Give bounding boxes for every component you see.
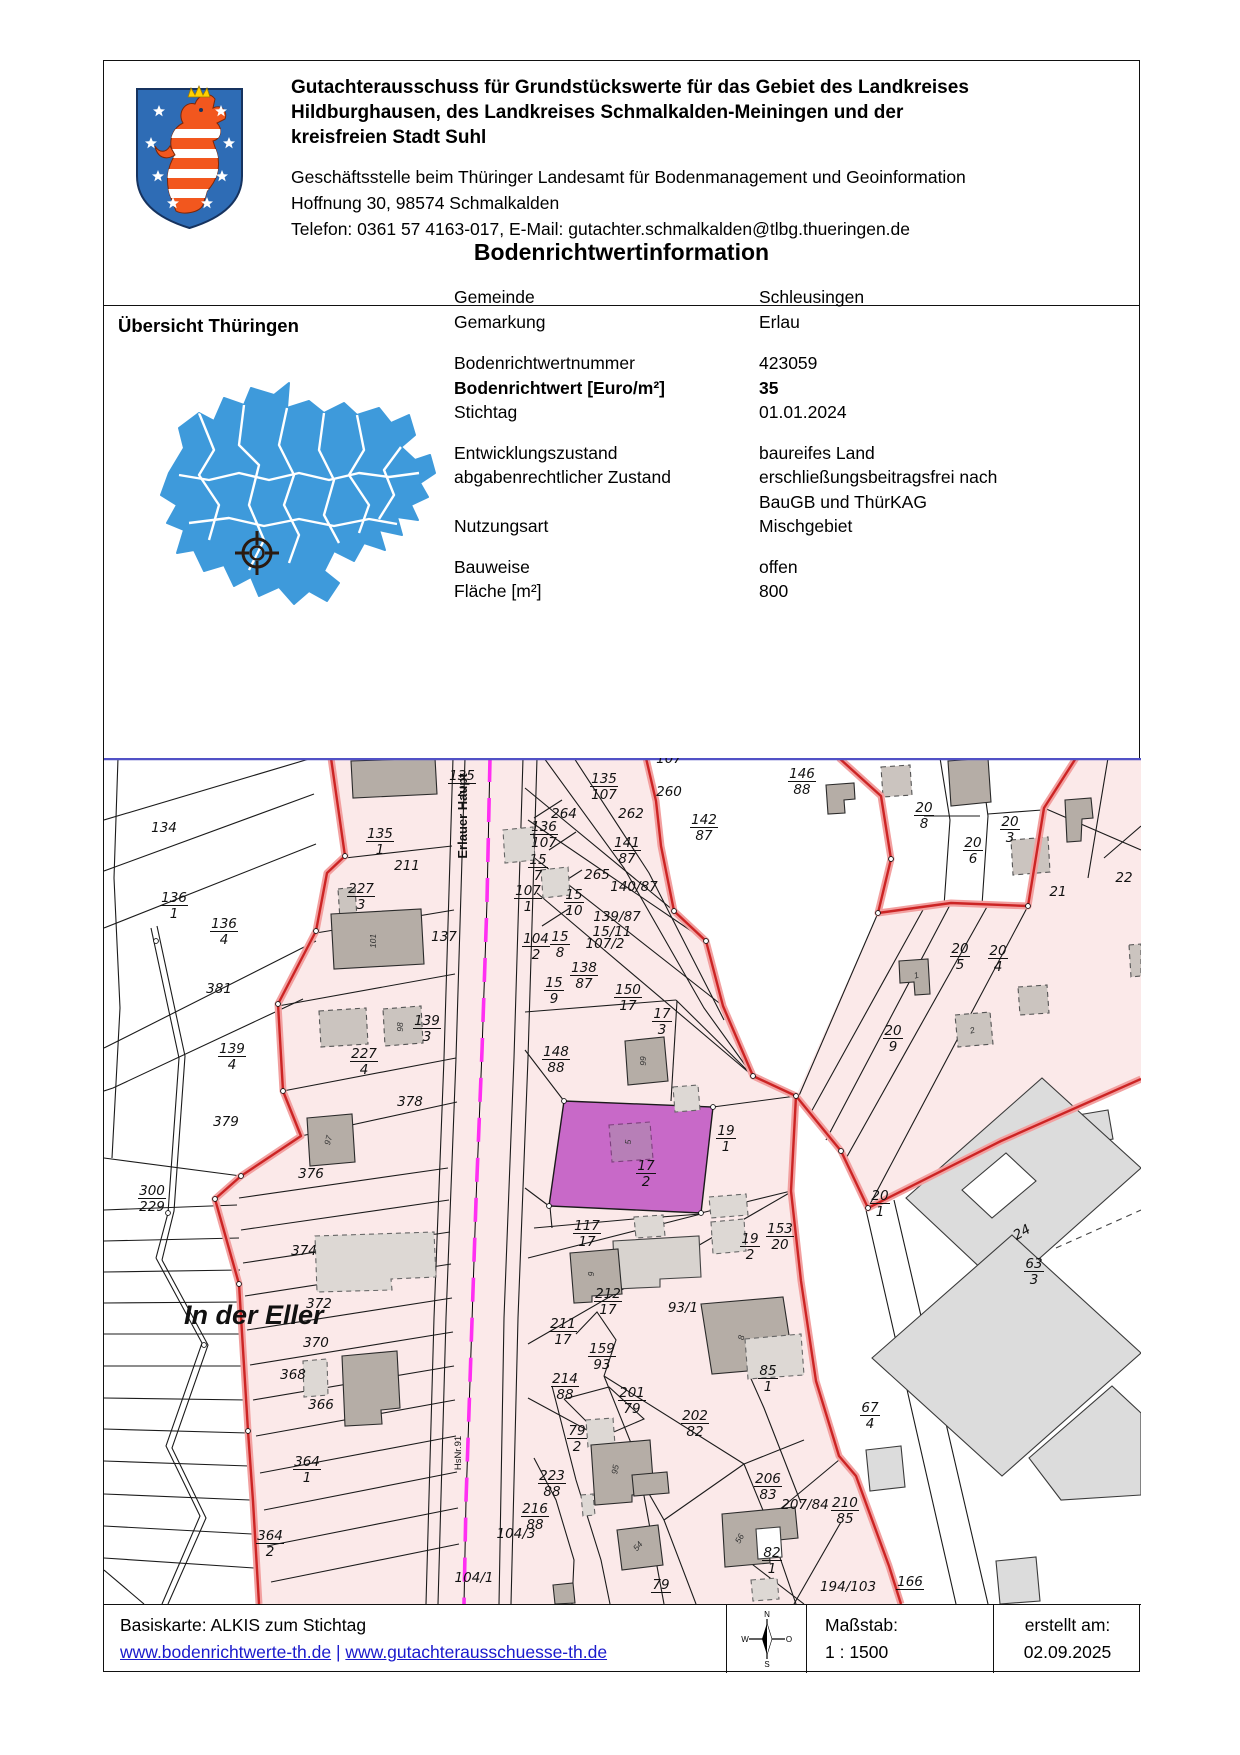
parcel-label: 107 — [656, 758, 682, 767]
parcel-label: 194/103 — [820, 1579, 876, 1595]
building — [351, 758, 437, 798]
svg-text:153: 153 — [767, 1221, 793, 1237]
parcel-label: 265 — [584, 867, 610, 883]
svg-text:79: 79 — [568, 1423, 585, 1439]
svg-text:17: 17 — [619, 998, 637, 1014]
building — [751, 1578, 779, 1601]
svg-text:17: 17 — [637, 1158, 655, 1174]
svg-text:370: 370 — [303, 1335, 329, 1351]
svg-text:1: 1 — [376, 842, 385, 858]
svg-text:136: 136 — [211, 916, 237, 932]
building — [586, 1418, 615, 1447]
svg-text:79: 79 — [623, 1401, 640, 1417]
svg-text:2: 2 — [746, 1247, 755, 1263]
scale-value: 1 : 1500 — [825, 1639, 993, 1666]
svg-text:93: 93 — [593, 1357, 610, 1373]
parcel-label: 211 — [394, 858, 420, 874]
svg-text:88: 88 — [547, 1060, 564, 1076]
created-label: erstellt am: — [994, 1612, 1141, 1639]
svg-text:2: 2 — [532, 947, 541, 963]
link-bodenrich twerte[interactable]: www.bodenrichtwerte-th.de — [120, 1642, 331, 1662]
svg-text:136: 136 — [531, 819, 557, 835]
street-name-hsnr91: HsNr.91 — [453, 1436, 464, 1470]
svg-text:211: 211 — [550, 1316, 576, 1332]
svg-text:300: 300 — [139, 1183, 165, 1199]
svg-text:117: 117 — [574, 1218, 600, 1234]
svg-text:1: 1 — [722, 1139, 731, 1155]
parcel-label: 1394 — [218, 1041, 246, 1073]
svg-text:368: 368 — [280, 1367, 306, 1383]
svg-text:8: 8 — [920, 816, 929, 832]
svg-text:83: 83 — [759, 1487, 776, 1503]
parcel-label: 262 — [618, 806, 644, 822]
svg-text:138: 138 — [571, 960, 597, 976]
svg-text:159: 159 — [589, 1341, 615, 1357]
info-row: NutzungsartMischgebiet — [454, 514, 1114, 539]
svg-text:207/84: 207/84 — [781, 1497, 829, 1513]
building — [996, 1557, 1040, 1604]
parcel-label: 140/87 — [610, 879, 658, 895]
svg-text:6: 6 — [969, 851, 978, 867]
svg-text:4: 4 — [866, 1416, 875, 1432]
svg-text:3: 3 — [357, 897, 366, 913]
building — [634, 1215, 665, 1238]
svg-text:20: 20 — [884, 1023, 901, 1039]
svg-text:93/1: 93/1 — [668, 1300, 698, 1316]
svg-text:22: 22 — [1115, 870, 1132, 886]
parcel-label: 22 — [1115, 870, 1132, 886]
svg-text:W: W — [741, 1635, 749, 1644]
svg-text:378: 378 — [397, 1094, 423, 1110]
parcel-label: 201 — [870, 1188, 890, 1220]
svg-text:63: 63 — [1025, 1256, 1042, 1272]
svg-text:229: 229 — [139, 1199, 165, 1215]
info-row: Bodenrichtwertnummer423059 — [454, 351, 1114, 376]
svg-text:4: 4 — [360, 1062, 369, 1078]
parcel-label: 381 — [206, 981, 232, 997]
svg-text:15: 15 — [529, 852, 546, 868]
building-number: 5 — [623, 1139, 633, 1144]
svg-text:137: 137 — [431, 929, 457, 945]
parcel-label: 134 — [151, 820, 177, 836]
building-number: 9 — [586, 1271, 596, 1276]
parcel-label: 104/1 — [455, 1570, 494, 1586]
parcel-label: 1364 — [210, 916, 238, 948]
parcel-label: 139/87 — [593, 909, 641, 925]
building-number: 95 — [609, 1464, 621, 1475]
info-row: Stichtag01.01.2024 — [454, 400, 1114, 425]
parcel-label: 260 — [656, 784, 682, 800]
svg-text:107: 107 — [515, 883, 541, 899]
parcel-label: 674 — [860, 1400, 880, 1432]
svg-text:107: 107 — [656, 758, 682, 767]
svg-text:19: 19 — [741, 1231, 758, 1247]
org-title: Gutachterausschuss für Grundstückswerte … — [291, 75, 969, 150]
thuringia-coat-of-arms — [131, 83, 248, 233]
svg-text:135: 135 — [591, 771, 617, 787]
building-number: 98 — [395, 1022, 405, 1032]
svg-text:1: 1 — [876, 1204, 885, 1220]
svg-text:19: 19 — [717, 1123, 734, 1139]
svg-text:20: 20 — [915, 800, 932, 816]
building — [581, 1494, 595, 1516]
svg-text:O: O — [785, 1635, 791, 1644]
building — [948, 758, 991, 806]
svg-text:227: 227 — [348, 881, 374, 897]
info-row: Fläche [m²]800 — [454, 579, 1114, 604]
svg-text:2: 2 — [573, 1439, 582, 1455]
parcel-label: 1361 — [160, 890, 188, 922]
svg-text:3: 3 — [1006, 830, 1015, 846]
svg-text:194/103: 194/103 — [820, 1579, 876, 1595]
svg-text:141: 141 — [614, 835, 640, 851]
svg-text:206: 206 — [755, 1471, 781, 1487]
org-line: Hildburghausen, des Landkreises Schmalka… — [291, 100, 969, 125]
svg-text:1: 1 — [524, 899, 533, 915]
svg-text:17: 17 — [653, 1006, 671, 1022]
svg-text:82: 82 — [686, 1424, 703, 1440]
svg-text:148: 148 — [543, 1044, 569, 1060]
parcel-label: 107/2 — [586, 936, 625, 952]
svg-text:166: 166 — [897, 1574, 923, 1590]
building — [632, 1472, 669, 1496]
svg-text:88: 88 — [556, 1387, 573, 1403]
parcel-label: 370 — [303, 1335, 329, 1351]
building — [826, 783, 855, 814]
org-line: kreisfreien Stadt Suhl — [291, 125, 969, 150]
svg-text:136: 136 — [161, 890, 187, 906]
building — [1129, 944, 1141, 977]
parcel-label: 14287 — [690, 812, 718, 844]
svg-text:20: 20 — [771, 1237, 788, 1253]
parcel-label: 14688 — [788, 766, 816, 798]
compass-rose-icon: N O S W — [739, 1609, 795, 1669]
svg-text:107/2: 107/2 — [586, 936, 625, 952]
svg-text:210: 210 — [832, 1495, 858, 1511]
svg-text:85: 85 — [759, 1363, 776, 1379]
overview-heading: Übersicht Thüringen — [118, 315, 299, 337]
building-number: 99 — [638, 1056, 648, 1066]
created-value: 02.09.2025 — [994, 1639, 1141, 1666]
parcel-label: 135107 — [590, 771, 618, 803]
svg-text:216: 216 — [522, 1501, 548, 1517]
parcel-label: 93/1 — [668, 1300, 698, 1316]
svg-text:104: 104 — [523, 931, 549, 947]
info-row: abgabenrechtlicher Zustanderschließungsb… — [454, 465, 1114, 514]
parcel-label: 136107 — [530, 819, 558, 851]
svg-text:15: 15 — [551, 929, 568, 945]
info-row-bodenrichtwert: Bodenrichtwert [Euro/m²]35 — [454, 376, 1114, 401]
parcel-label: 207/84 — [781, 1497, 829, 1513]
svg-text:202: 202 — [682, 1408, 708, 1424]
building — [303, 1359, 328, 1397]
svg-text:107: 107 — [531, 835, 557, 851]
svg-text:260: 260 — [656, 784, 682, 800]
svg-text:15: 15 — [565, 887, 582, 903]
svg-text:374: 374 — [291, 1243, 317, 1259]
svg-text:20: 20 — [951, 941, 968, 957]
svg-text:3: 3 — [1030, 1272, 1039, 1288]
svg-text:227: 227 — [351, 1046, 377, 1062]
svg-text:211: 211 — [394, 858, 420, 874]
svg-text:265: 265 — [584, 867, 610, 883]
svg-text:214: 214 — [552, 1371, 578, 1387]
svg-text:87: 87 — [695, 828, 713, 844]
street-name-erlauer-haupt: Erlauer Haupt — [455, 773, 470, 859]
svg-text:S: S — [764, 1660, 769, 1669]
svg-text:364: 364 — [294, 1454, 320, 1470]
svg-text:85: 85 — [836, 1511, 853, 1527]
basemap-text: Basiskarte: ALKIS zum Stichtag — [120, 1612, 726, 1639]
footer-basemap-cell: Basiskarte: ALKIS zum Stichtag www.boden… — [104, 1605, 726, 1673]
building — [866, 1446, 905, 1491]
svg-text:10: 10 — [565, 903, 582, 919]
info-table: GemeindeSchleusingen GemarkungErlau Bode… — [454, 285, 1114, 604]
svg-text:17: 17 — [554, 1332, 572, 1348]
office-block: Geschäftsstelle beim Thüringer Landesamt… — [291, 164, 966, 242]
building-number: 101 — [368, 934, 378, 948]
svg-text:20: 20 — [964, 835, 981, 851]
svg-text:139/87: 139/87 — [593, 909, 641, 925]
svg-text:88: 88 — [526, 1517, 543, 1533]
svg-text:142: 142 — [691, 812, 717, 828]
building — [673, 1085, 700, 1112]
page-title: Bodenrichtwertinformation — [104, 239, 1139, 266]
parcel-label: 366 — [308, 1397, 334, 1413]
parcel-label: 368 — [280, 1367, 306, 1383]
svg-text:1: 1 — [764, 1379, 773, 1395]
svg-text:9: 9 — [889, 1039, 898, 1055]
svg-text:212: 212 — [595, 1286, 621, 1302]
svg-text:3: 3 — [423, 1029, 432, 1045]
svg-text:364: 364 — [257, 1528, 283, 1544]
link-separator: | — [336, 1642, 341, 1662]
parcel-label: 379 — [213, 1114, 239, 1130]
svg-text:262: 262 — [618, 806, 644, 822]
thuringia-overview-map — [139, 355, 449, 617]
svg-text:201: 201 — [619, 1385, 645, 1401]
svg-text:20: 20 — [989, 943, 1006, 959]
svg-text:87: 87 — [575, 976, 593, 992]
svg-text:17: 17 — [599, 1302, 617, 1318]
footer-bar: Basiskarte: ALKIS zum Stichtag www.boden… — [104, 1604, 1141, 1673]
svg-text:1: 1 — [170, 906, 179, 922]
scale-label: Maßstab: — [825, 1612, 993, 1639]
svg-text:9: 9 — [550, 991, 559, 1007]
building — [709, 1194, 748, 1218]
building — [1018, 985, 1049, 1015]
parcel-label: 137 — [431, 929, 457, 945]
svg-text:1: 1 — [303, 1470, 312, 1486]
svg-text:21: 21 — [1049, 884, 1066, 900]
parcel-label: 1510 — [564, 887, 584, 919]
svg-text:139: 139 — [219, 1041, 245, 1057]
svg-text:134: 134 — [151, 820, 177, 836]
svg-text:20: 20 — [1001, 814, 1018, 830]
svg-text:15: 15 — [545, 975, 562, 991]
svg-text:135: 135 — [367, 826, 393, 842]
svg-text:4: 4 — [228, 1057, 237, 1073]
svg-text:4: 4 — [220, 932, 229, 948]
bodenrichtwert-document: { "header": { "org_lines": [ "Gutachtera… — [0, 0, 1240, 1755]
svg-text:2: 2 — [266, 1544, 275, 1560]
svg-text:N: N — [764, 1610, 770, 1619]
building — [319, 1008, 368, 1047]
svg-text:140/87: 140/87 — [610, 879, 658, 895]
svg-text:381: 381 — [206, 981, 232, 997]
footer-created-cell: erstellt am: 02.09.2025 — [993, 1605, 1141, 1673]
footer-scale-cell: Maßstab: 1 : 1500 — [806, 1605, 993, 1673]
svg-text:17: 17 — [578, 1234, 596, 1250]
svg-text:8: 8 — [556, 945, 565, 961]
parcel-label: 208 — [914, 800, 934, 832]
svg-text:379: 379 — [213, 1114, 239, 1130]
svg-text:107: 107 — [591, 787, 617, 803]
svg-text:88: 88 — [793, 782, 810, 798]
info-row: GemeindeSchleusingen — [454, 285, 1114, 310]
svg-text:88: 88 — [543, 1484, 560, 1500]
svg-text:3: 3 — [658, 1022, 667, 1038]
cadastral-map: 1019897995989554561213413611364381139430… — [104, 758, 1141, 1604]
svg-text:146: 146 — [789, 766, 815, 782]
building — [881, 765, 912, 797]
svg-text:139: 139 — [414, 1013, 440, 1029]
parcel-label: 376 — [298, 1166, 324, 1182]
svg-text:104/1: 104/1 — [455, 1570, 494, 1586]
svg-text:376: 376 — [298, 1166, 324, 1182]
svg-text:20: 20 — [871, 1188, 888, 1204]
org-line: Gutachterausschuss für Grundstückswerte … — [291, 75, 969, 100]
cadastral-map-frame: 1019897995989554561213413611364381139430… — [104, 758, 1141, 1604]
info-row: Bauweiseoffen — [454, 555, 1114, 580]
parcel-label: 79 — [651, 1577, 671, 1593]
parcel-label: 21 — [1049, 884, 1066, 900]
svg-text:87: 87 — [618, 851, 636, 867]
svg-text:366: 366 — [308, 1397, 334, 1413]
svg-text:2: 2 — [642, 1174, 651, 1190]
svg-text:1: 1 — [768, 1561, 777, 1577]
parcel-label: 206 — [963, 835, 983, 867]
document-page: Gutachterausschuss für Grundstückswerte … — [103, 60, 1140, 1672]
info-row: GemarkungErlau — [454, 310, 1114, 335]
link-gutachterausschuesse[interactable]: www.gutachterausschuesse-th.de — [345, 1642, 607, 1662]
parcel-label: 300229 — [138, 1183, 166, 1215]
parcel-label: 374 — [291, 1243, 317, 1259]
building — [553, 1583, 575, 1604]
parcel-label: 378 — [397, 1094, 423, 1110]
svg-text:82: 82 — [763, 1545, 780, 1561]
svg-text:223: 223 — [539, 1468, 565, 1484]
svg-text:67: 67 — [861, 1400, 879, 1416]
info-row: Entwicklungszustandbaureifes Land — [454, 441, 1114, 466]
svg-text:7: 7 — [534, 868, 543, 884]
area-name-in-der-eller: In der Eller — [184, 1300, 325, 1330]
address-line: Hoffnung 30, 98574 Schmalkalden — [291, 190, 966, 216]
svg-text:150: 150 — [615, 982, 641, 998]
footer-compass-cell: N O S W — [726, 1605, 806, 1673]
svg-text:5: 5 — [956, 957, 965, 973]
office-line: Geschäftsstelle beim Thüringer Landesamt… — [291, 164, 966, 190]
parcel-label: 166 — [896, 1574, 924, 1590]
svg-text:4: 4 — [994, 959, 1003, 975]
svg-text:79: 79 — [652, 1577, 669, 1593]
